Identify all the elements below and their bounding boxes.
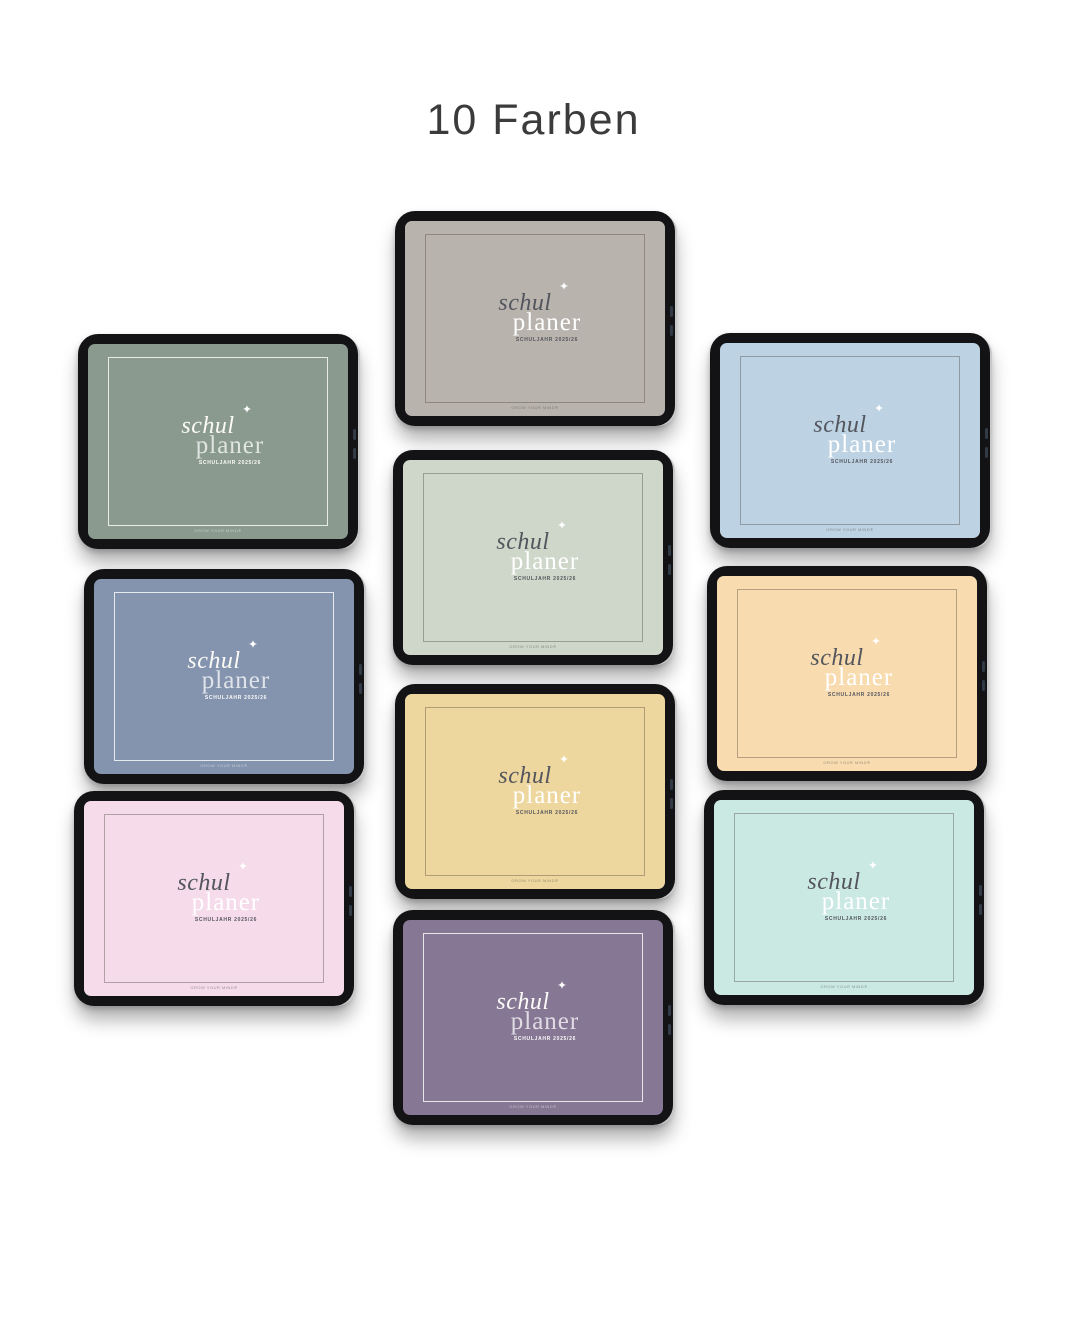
sparkle-icon: ✦ [559,755,568,766]
schulplaner-logo: schul ✦ planer SCHULJAHR 2025/26 [403,990,663,1042]
planner-cover: schul ✦ planer SCHULJAHR 2025/26 GROW YO… [403,920,663,1115]
school-year-label: SCHULJAHR 2025/26 [831,460,893,465]
volume-down-button [670,325,673,336]
logo-word-planer: planer [513,783,581,808]
tablet-mockup-apricot: schul ✦ planer SCHULJAHR 2025/26 GROW YO… [707,566,987,781]
brand-watermark: GROW YOUR MIND® [405,878,665,883]
volume-up-button [979,885,982,896]
planner-cover: schul ✦ planer SCHULJAHR 2025/26 GROW YO… [720,343,980,538]
volume-up-button [349,886,352,897]
school-year-label: SCHULJAHR 2025/26 [205,696,267,701]
volume-up-button [353,429,356,440]
schulplaner-logo: schul ✦ planer SCHULJAHR 2025/26 [88,414,348,466]
logo-word-planer: planer [196,433,264,458]
planner-cover: schul ✦ planer SCHULJAHR 2025/26 GROW YO… [717,576,977,771]
volume-down-button [359,683,362,694]
schulplaner-logo: schul ✦ planer SCHULJAHR 2025/26 [94,649,354,701]
sparkle-icon: ✦ [871,637,880,648]
planner-cover: schul ✦ planer SCHULJAHR 2025/26 GROW YO… [94,579,354,774]
tablet-mockup-aqua-mint: schul ✦ planer SCHULJAHR 2025/26 GROW YO… [704,790,984,1005]
brand-watermark: GROW YOUR MIND® [720,527,980,532]
school-year-label: SCHULJAHR 2025/26 [199,461,261,466]
schulplaner-logo: schul ✦ planer SCHULJAHR 2025/26 [403,530,663,582]
school-year-label: SCHULJAHR 2025/26 [195,918,257,923]
volume-up-button [982,661,985,672]
volume-down-button [668,1024,671,1035]
schulplaner-logo: schul ✦ planer SCHULJAHR 2025/26 [405,764,665,816]
page-title: 10 Farben [0,96,1067,145]
tablet-mockup-light-blue: schul ✦ planer SCHULJAHR 2025/26 GROW YO… [710,333,990,548]
brand-watermark: GROW YOUR MIND® [717,760,977,765]
logo-word-planer: planer [513,310,581,335]
volume-up-button [670,306,673,317]
sparkle-icon: ✦ [248,640,257,651]
tablet-mockup-sage-green: schul ✦ planer SCHULJAHR 2025/26 GROW YO… [78,334,358,549]
logo-word-planer: planer [822,889,890,914]
product-page: 10 Farben schul ✦ planer SCHULJAHR 2025/… [0,0,1067,1333]
volume-up-button [985,428,988,439]
tablet-mockup-rose-pink: schul ✦ planer SCHULJAHR 2025/26 GROW YO… [74,791,354,1006]
school-year-label: SCHULJAHR 2025/26 [516,811,578,816]
school-year-label: SCHULJAHR 2025/26 [516,338,578,343]
planner-cover: schul ✦ planer SCHULJAHR 2025/26 GROW YO… [714,800,974,995]
logo-word-planer: planer [511,1009,579,1034]
brand-watermark: GROW YOUR MIND® [403,644,663,649]
planner-cover: schul ✦ planer SCHULJAHR 2025/26 GROW YO… [405,221,665,416]
logo-word-planer: planer [825,665,893,690]
tablet-mockup-vanilla-yellow: schul ✦ planer SCHULJAHR 2025/26 GROW YO… [395,684,675,899]
tablet-mockup-slate-blue: schul ✦ planer SCHULJAHR 2025/26 GROW YO… [84,569,364,784]
planner-cover: schul ✦ planer SCHULJAHR 2025/26 GROW YO… [88,344,348,539]
schulplaner-logo: schul ✦ planer SCHULJAHR 2025/26 [720,413,980,465]
volume-down-button [349,905,352,916]
sparkle-icon: ✦ [242,405,251,416]
school-year-label: SCHULJAHR 2025/26 [828,693,890,698]
planner-cover: schul ✦ planer SCHULJAHR 2025/26 GROW YO… [84,801,344,996]
school-year-label: SCHULJAHR 2025/26 [825,917,887,922]
volume-down-button [979,904,982,915]
school-year-label: SCHULJAHR 2025/26 [514,577,576,582]
schulplaner-logo: schul ✦ planer SCHULJAHR 2025/26 [714,870,974,922]
volume-up-button [668,1005,671,1016]
planner-cover: schul ✦ planer SCHULJAHR 2025/26 GROW YO… [403,460,663,655]
sparkle-icon: ✦ [868,861,877,872]
brand-watermark: GROW YOUR MIND® [403,1104,663,1109]
logo-word-planer: planer [192,890,260,915]
brand-watermark: GROW YOUR MIND® [88,528,348,533]
logo-word-planer: planer [202,668,270,693]
volume-up-button [670,779,673,790]
volume-down-button [668,564,671,575]
planner-cover: schul ✦ planer SCHULJAHR 2025/26 GROW YO… [405,694,665,889]
brand-watermark: GROW YOUR MIND® [405,405,665,410]
tablet-mockup-pale-sage: schul ✦ planer SCHULJAHR 2025/26 GROW YO… [393,450,673,665]
schulplaner-logo: schul ✦ planer SCHULJAHR 2025/26 [405,291,665,343]
tablet-mockup-greige: schul ✦ planer SCHULJAHR 2025/26 GROW YO… [395,211,675,426]
volume-up-button [359,664,362,675]
volume-down-button [670,798,673,809]
volume-down-button [982,680,985,691]
sparkle-icon: ✦ [238,862,247,873]
logo-word-planer: planer [511,549,579,574]
schulplaner-logo: schul ✦ planer SCHULJAHR 2025/26 [84,871,344,923]
volume-up-button [668,545,671,556]
brand-watermark: GROW YOUR MIND® [84,985,344,990]
volume-down-button [353,448,356,459]
schulplaner-logo: schul ✦ planer SCHULJAHR 2025/26 [717,646,977,698]
brand-watermark: GROW YOUR MIND® [714,984,974,989]
school-year-label: SCHULJAHR 2025/26 [514,1037,576,1042]
sparkle-icon: ✦ [559,282,568,293]
sparkle-icon: ✦ [557,981,566,992]
sparkle-icon: ✦ [874,404,883,415]
sparkle-icon: ✦ [557,521,566,532]
tablet-mockup-mauve-purple: schul ✦ planer SCHULJAHR 2025/26 GROW YO… [393,910,673,1125]
volume-down-button [985,447,988,458]
brand-watermark: GROW YOUR MIND® [94,763,354,768]
logo-word-planer: planer [828,432,896,457]
